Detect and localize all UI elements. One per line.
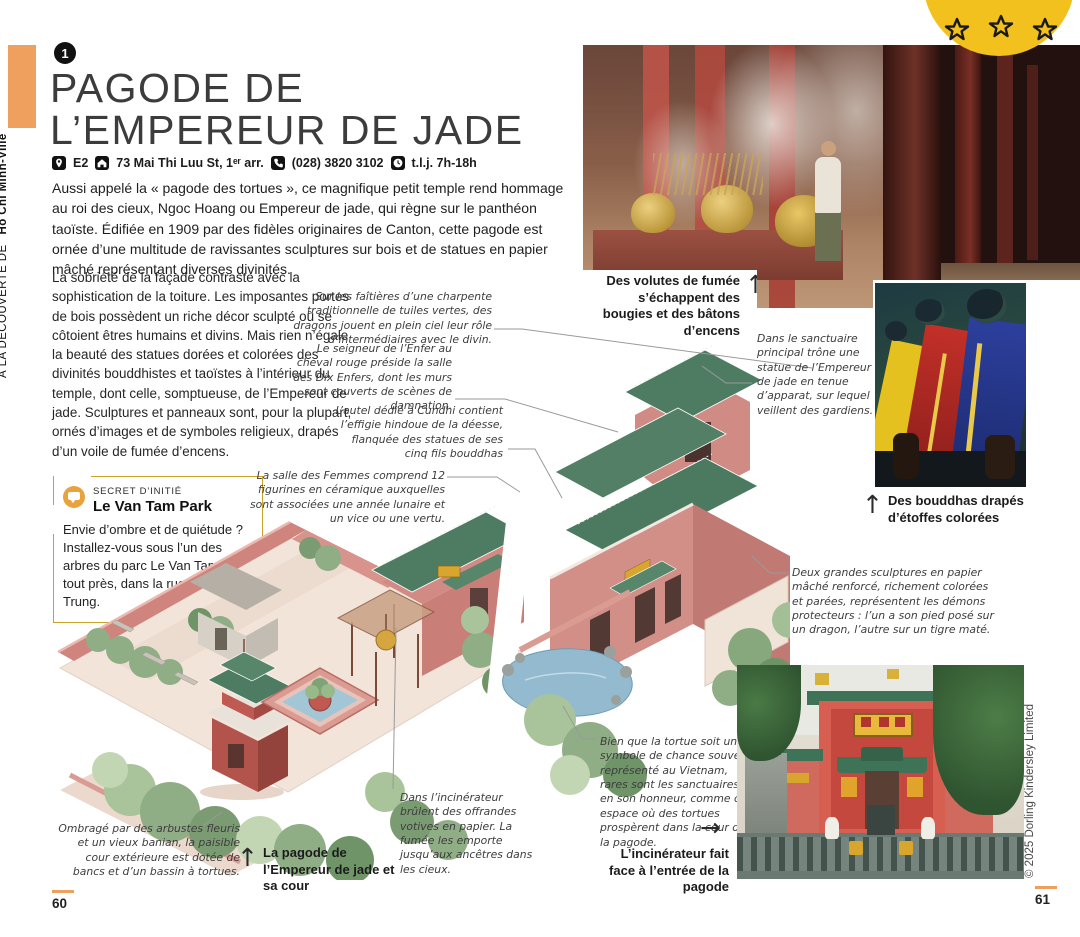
chapter-vertical-label: À LA DÉCOUVERTE DEHô Chi Minh-Ville bbox=[0, 133, 13, 378]
chapter-name: Hô Chi Minh-Ville bbox=[0, 133, 9, 234]
guide-page: À LA DÉCOUVERTE DEHô Chi Minh-Ville 1 PA… bbox=[0, 0, 1080, 937]
annotation-faitieres: Sur les faîtières d’une charpente tradit… bbox=[292, 290, 492, 347]
section-label: À LA DÉCOUVERTE DE bbox=[0, 244, 9, 378]
up-arrow-icon: ↑ bbox=[237, 845, 258, 870]
sight-number: 1 bbox=[61, 46, 68, 61]
annotation-sanctuaire: Dans le sanctuaire principal trône une s… bbox=[757, 332, 885, 418]
annotation-incinerateur: Dans l’incinérateur brûlent des offrande… bbox=[400, 791, 540, 877]
map-ref: E2 bbox=[73, 156, 88, 170]
star-rating-badge bbox=[900, 0, 1080, 84]
caption-incinerateur-face: L’incinérateur fait face à l’entrée de l… bbox=[596, 846, 729, 896]
annotation-cundhi: L’autel dédié à Cundhi contient l’effigi… bbox=[326, 404, 503, 461]
chapter-color-tab bbox=[8, 45, 36, 128]
photo-buddhas-cloth bbox=[875, 283, 1026, 487]
sight-number-badge: 1 bbox=[54, 42, 76, 64]
annotation-demons: Deux grandes sculptures en papier mâché … bbox=[792, 566, 994, 638]
title-line-2: L’EMPEREUR DE JADE bbox=[50, 110, 524, 152]
page-number-right: 61 bbox=[1035, 892, 1057, 907]
right-arrow-icon: → bbox=[700, 815, 721, 840]
phone-number: (028) 3820 3102 bbox=[292, 156, 384, 170]
caption-volutes: Des volutes de fumée s’échappent des bou… bbox=[592, 273, 740, 340]
copyright-notice: © 2025 Dorling Kindersley Limited bbox=[1024, 704, 1040, 878]
folio-left: 60 bbox=[52, 890, 74, 911]
folio-rule bbox=[1035, 886, 1057, 889]
map-pin-icon bbox=[52, 156, 66, 170]
folio-rule bbox=[52, 890, 74, 893]
photo-incense-offerings bbox=[583, 45, 1080, 308]
phone-icon bbox=[271, 156, 285, 170]
address: 73 Mai Thi Luu St, 1ᵉʳ arr. bbox=[116, 156, 263, 170]
intro-paragraph: Aussi appelé la « pagode des tortues », … bbox=[52, 178, 572, 279]
caption-bouddhas: Des bouddhas drapés d’étoffes colorées bbox=[888, 493, 1043, 526]
title-line-1: PAGODE DE bbox=[50, 68, 524, 110]
caption-pagode-cour: La pagode de l’Empereur de jade et sa co… bbox=[263, 845, 398, 895]
house-icon bbox=[95, 156, 109, 170]
page-title: PAGODE DE L’EMPEREUR DE JADE bbox=[50, 68, 524, 152]
folio-right: 61 bbox=[1035, 886, 1057, 907]
up-arrow-icon: ↑ bbox=[862, 492, 883, 517]
annotation-cour: Ombragé par des arbustes fleuris et un v… bbox=[52, 822, 240, 879]
annotation-tortue: Bien que la tortue soit un symbole de ch… bbox=[600, 735, 753, 850]
opening-hours: t.l.j. 7h-18h bbox=[412, 156, 477, 170]
page-number-left: 60 bbox=[52, 896, 74, 911]
photo-pagoda-entrance bbox=[737, 665, 1024, 879]
clock-icon bbox=[391, 156, 405, 170]
annotation-femmes: La salle des Femmes comprend 12 figurine… bbox=[246, 469, 445, 526]
practical-info: E2 73 Mai Thi Luu St, 1ᵉʳ arr. (028) 382… bbox=[52, 156, 477, 170]
